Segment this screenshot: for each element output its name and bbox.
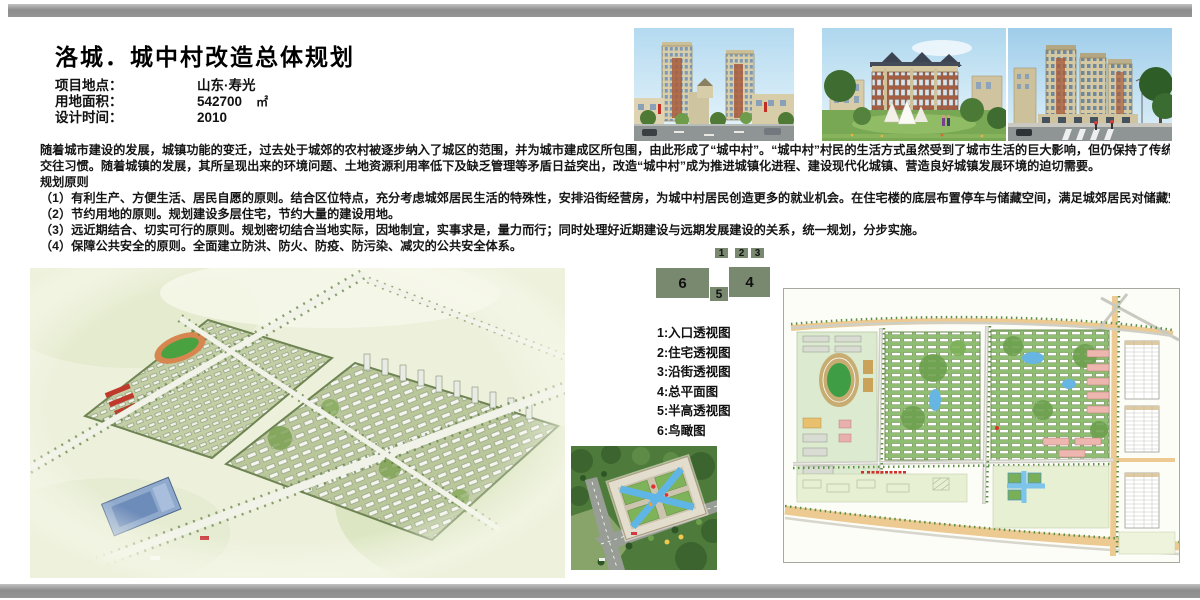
top-divider-bar (8, 4, 1192, 17)
principle-item: （3）远近期结合、切实可行的原则。规划密切结合当地实际，因地制宜，实事求是，量力… (40, 222, 1170, 238)
description-line: 随着城市建设的发展，城镇功能的变迁，过去处于城郊的农村被逐步纳入了城区的范围，并… (40, 142, 1170, 158)
bottom-divider-bar (0, 584, 1200, 598)
principle-item: （1）有利生产、方便生活、居民自愿的原则。结合区位特点，充分考虑城郊居民生活的特… (40, 190, 1170, 206)
photo-residential-perspective (822, 28, 1006, 141)
residential-rendering-graphic (822, 28, 1006, 141)
info-value: 2010 (197, 110, 227, 126)
legend-item: 3:沿街透视图 (657, 363, 731, 383)
rendering-birdseye-view (30, 268, 565, 578)
legend-item: 2:住宅透视图 (657, 344, 731, 364)
info-unit: ㎡ (256, 94, 268, 110)
info-value: 542700 (197, 94, 242, 110)
key-map-block-3: 3 (751, 248, 764, 258)
info-label: 项目地点： (55, 78, 197, 94)
presentation-board: 洛城．城中村改造总体规划 项目地点： 山东·寿光 用地面积： 542700 ㎡ … (0, 0, 1200, 600)
halfheight-graphic (571, 446, 717, 570)
legend-item: 5:半高透视图 (657, 402, 731, 422)
key-map-block-2: 2 (735, 248, 748, 258)
page-title: 洛城．城中村改造总体规划 (55, 38, 355, 72)
street-rendering-graphic (1008, 28, 1172, 141)
principle-item: （4）保障公共安全的原则。全面建立防洪、防火、防疫、防污染、减灾的公共安全体系。 (40, 238, 1170, 254)
legend-item: 4:总平面图 (657, 383, 731, 403)
master-plan-drawing (783, 288, 1180, 563)
info-label: 设计时间： (55, 110, 197, 126)
view-legend: 1:入口透视图 2:住宅透视图 3:沿街透视图 4:总平面图 5:半高透视图 6… (657, 324, 731, 441)
info-row-date: 设计时间： 2010 (55, 110, 268, 126)
photo-street-perspective (1008, 28, 1172, 141)
principles-title: 规划原则 (40, 174, 1170, 190)
key-map-block-6: 6 (656, 268, 709, 298)
key-map: 1 2 3 4 5 6 (656, 246, 776, 304)
key-map-block-5: 5 (710, 287, 728, 301)
rendering-halfheight-view (571, 446, 717, 570)
birdseye-graphic (30, 268, 565, 578)
info-label: 用地面积： (55, 94, 197, 110)
red-note (861, 471, 906, 474)
key-map-block-4: 4 (729, 267, 770, 297)
photo-entrance-perspective (634, 28, 794, 141)
indicator-tables (1125, 341, 1159, 528)
description-text: 随着城市建设的发展，城镇功能的变迁，过去处于城郊的农村被逐步纳入了城区的范围，并… (40, 142, 1170, 254)
project-info: 项目地点： 山东·寿光 用地面积： 542700 ㎡ 设计时间： 2010 (55, 78, 268, 126)
info-value: 山东·寿光 (197, 78, 256, 94)
master-plan-graphic (783, 288, 1180, 563)
legend-item: 6:鸟瞰图 (657, 422, 731, 442)
info-row-area: 用地面积： 542700 ㎡ (55, 94, 268, 110)
description-line: 交往习惯。随着城镇的发展，其所呈现出来的环境问题、土地资源利用率低下及缺乏管理等… (40, 158, 1170, 174)
info-row-location: 项目地点： 山东·寿光 (55, 78, 268, 94)
legend-item: 1:入口透视图 (657, 324, 731, 344)
entrance-rendering-graphic (634, 28, 794, 141)
principle-item: （2）节约用地的原则。规划建设多层住宅，节约大量的建设用地。 (40, 206, 1170, 222)
key-map-block-1: 1 (715, 248, 728, 258)
